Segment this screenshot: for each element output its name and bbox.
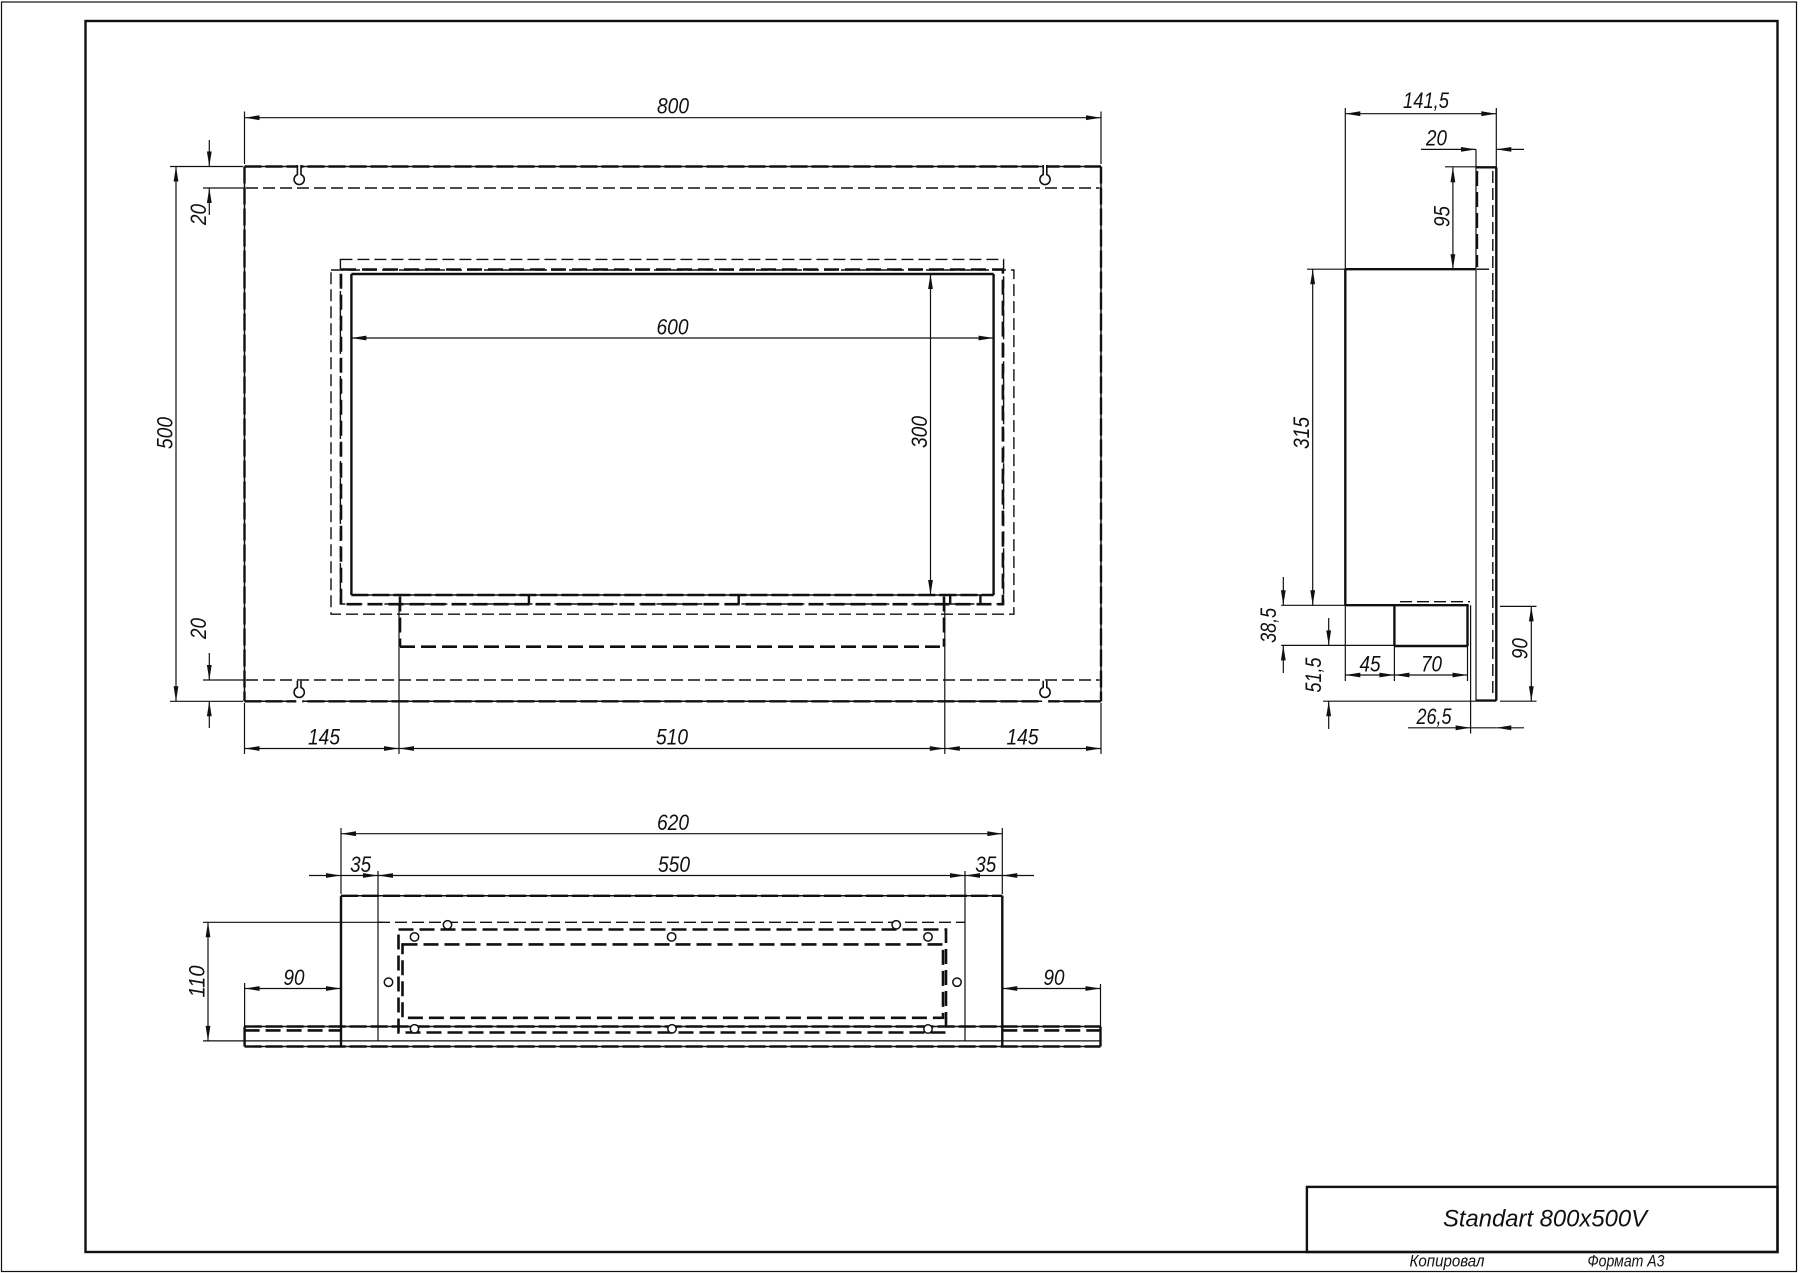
svg-text:70: 70	[1421, 651, 1442, 676]
svg-text:38,5: 38,5	[1256, 608, 1281, 643]
svg-text:90: 90	[1507, 638, 1532, 659]
svg-text:26,5: 26,5	[1416, 704, 1452, 729]
svg-text:600: 600	[657, 315, 689, 340]
svg-text:510: 510	[656, 725, 688, 750]
svg-text:Копировал: Копировал	[1410, 1253, 1485, 1271]
svg-text:620: 620	[657, 810, 689, 835]
svg-text:110: 110	[185, 965, 210, 997]
svg-text:145: 145	[1007, 725, 1039, 750]
svg-text:550: 550	[658, 852, 690, 877]
svg-text:35: 35	[350, 852, 371, 877]
svg-text:20: 20	[186, 204, 211, 226]
svg-text:145: 145	[308, 725, 340, 750]
svg-text:90: 90	[284, 965, 305, 990]
svg-text:51,5: 51,5	[1301, 657, 1326, 692]
svg-text:500: 500	[152, 417, 177, 449]
svg-text:20: 20	[1425, 126, 1447, 151]
svg-text:45: 45	[1360, 651, 1381, 676]
svg-text:90: 90	[1044, 965, 1065, 990]
svg-text:300: 300	[907, 416, 932, 448]
svg-text:Standart 800x500V: Standart 800x500V	[1443, 1206, 1649, 1233]
svg-text:35: 35	[975, 852, 996, 877]
svg-text:Формат А3: Формат А3	[1588, 1253, 1666, 1271]
svg-text:315: 315	[1289, 417, 1314, 449]
svg-text:95: 95	[1429, 206, 1454, 227]
svg-text:20: 20	[186, 618, 211, 640]
svg-text:141,5: 141,5	[1403, 88, 1449, 113]
svg-text:800: 800	[657, 94, 689, 119]
